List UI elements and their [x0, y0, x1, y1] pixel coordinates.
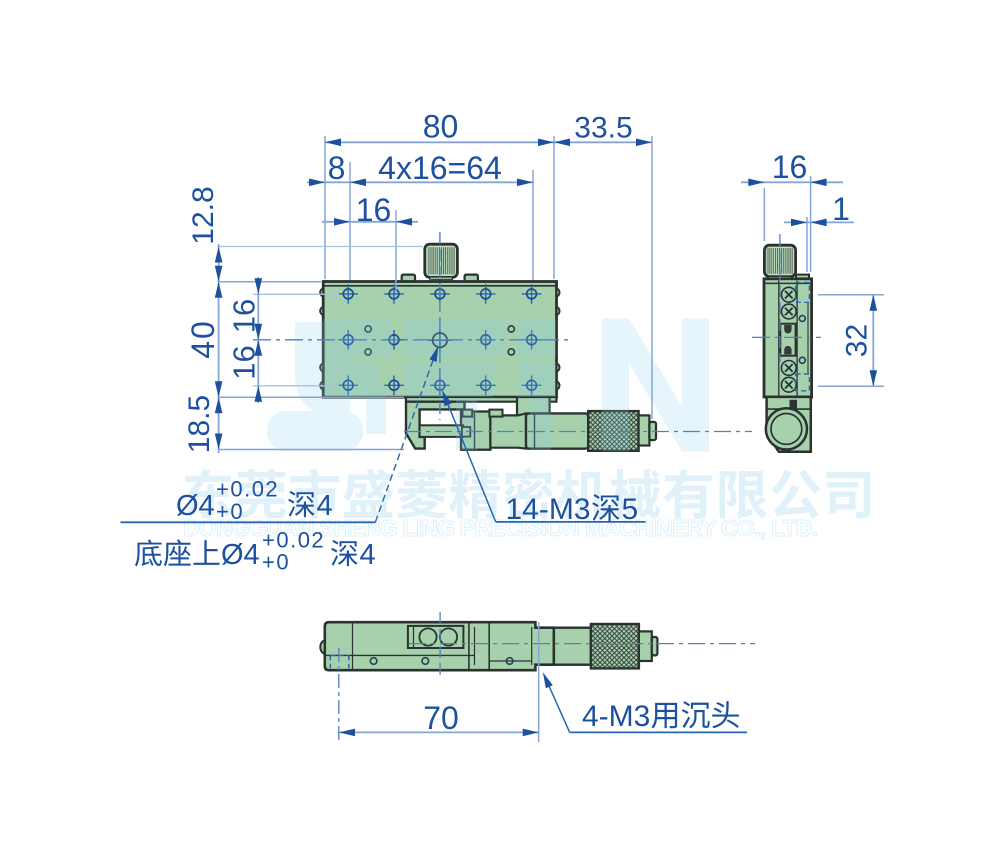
svg-text:40: 40 [185, 319, 221, 359]
svg-text:16: 16 [772, 149, 808, 185]
svg-text:16: 16 [227, 345, 262, 379]
svg-text:16: 16 [356, 192, 392, 228]
svg-text:Ø4: Ø4 [176, 490, 215, 522]
svg-text:5: 5 [622, 493, 639, 526]
svg-text:+0.02: +0.02 [216, 477, 279, 502]
svg-text:16: 16 [227, 299, 262, 333]
svg-text:4: 4 [360, 539, 376, 571]
svg-text:12.8: 12.8 [187, 186, 220, 244]
svg-text:33.5: 33.5 [574, 112, 632, 145]
svg-text:4: 4 [317, 490, 333, 522]
svg-text:8: 8 [328, 150, 346, 186]
svg-text:+0: +0 [216, 499, 244, 524]
svg-text:14-M3: 14-M3 [506, 493, 591, 526]
svg-text:70: 70 [423, 700, 459, 736]
svg-text:32: 32 [841, 324, 874, 357]
svg-text:1: 1 [832, 191, 850, 227]
svg-text:+0: +0 [262, 550, 290, 575]
svg-text:80: 80 [423, 109, 459, 145]
svg-text:Ø4: Ø4 [221, 539, 260, 571]
svg-text:4-M3: 4-M3 [582, 700, 650, 733]
svg-text:4x16=64: 4x16=64 [378, 150, 502, 186]
svg-text:18.5: 18.5 [183, 395, 216, 453]
